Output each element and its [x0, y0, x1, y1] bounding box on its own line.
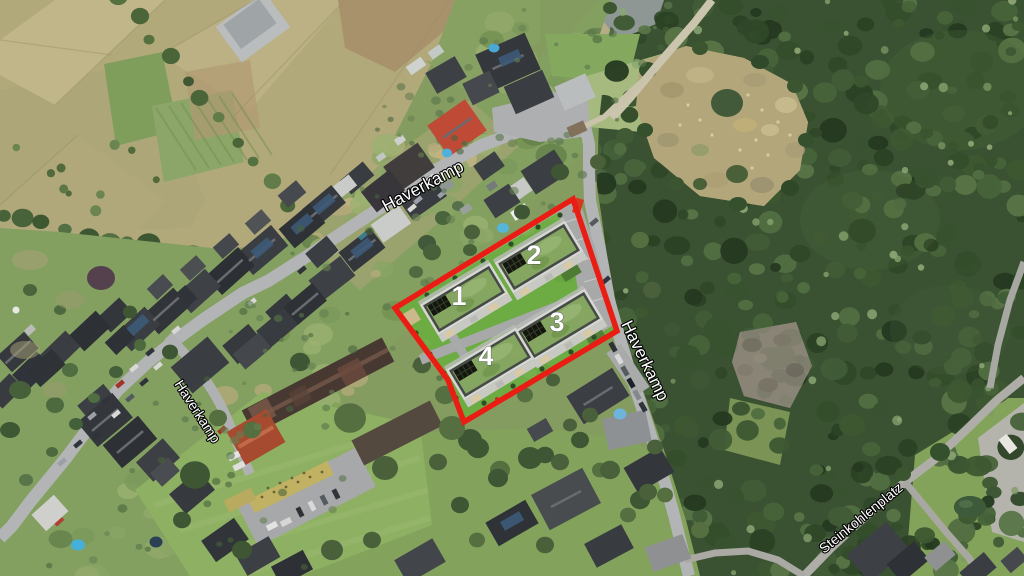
svg-text:1: 1	[451, 281, 466, 311]
svg-text:2: 2	[526, 240, 541, 270]
svg-text:4: 4	[478, 341, 493, 371]
svg-text:3: 3	[549, 307, 564, 337]
